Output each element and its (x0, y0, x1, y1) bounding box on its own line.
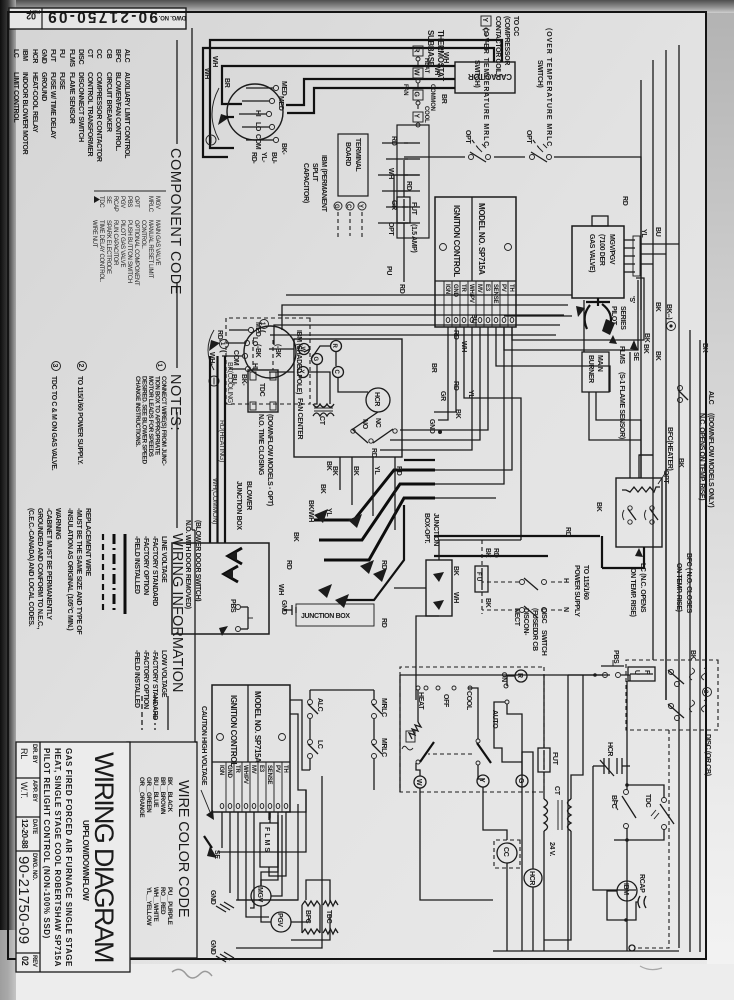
svg-text:BR: BR (223, 78, 230, 88)
svg-text:BK: BK (701, 343, 708, 353)
svg-text:COMPRESSOR CONTACTOR: COMPRESSOR CONTACTOR (95, 72, 102, 162)
svg-text:RD: RD (390, 136, 397, 146)
svg-text:BK--): BK--) (665, 304, 672, 319)
svg-text:IGNITION CONTROL: IGNITION CONTROL (229, 695, 238, 767)
svg-text:FUSE: FUSE (58, 72, 65, 90)
svg-text:E3: E3 (484, 284, 490, 292)
svg-text:(-BK: (-BK (254, 344, 261, 358)
svg-text:02: 02 (20, 956, 30, 966)
svg-text:90-21750-09: 90-21750-09 (15, 856, 32, 944)
svg-text:WH(COMMON): WH(COMMON) (211, 478, 218, 524)
svg-text:WARNING: WARNING (54, 508, 61, 540)
svg-text:REV: REV (31, 955, 37, 967)
svg-text:CONTROL TRANSFORMER: CONTROL TRANSFORMER (86, 72, 93, 157)
svg-text:RD: RD (492, 548, 499, 558)
svg-text:FUSE W/ TIME DELAY: FUSE W/ TIME DELAY (49, 72, 56, 139)
svg-text:BFC ( N.O. CLOSES: BFC ( N.O. CLOSES (685, 553, 692, 613)
svg-text:CONTROL.: CONTROL. (140, 220, 146, 249)
svg-text:GND: GND (226, 765, 232, 779)
svg-text:LC: LC (316, 740, 323, 749)
svg-text:FUT: FUT (410, 202, 417, 216)
svg-text:MODEL NO. SP715A: MODEL NO. SP715A (477, 203, 486, 275)
svg-text:(DOWNFLOW MODELS - OPT): (DOWNFLOW MODELS - OPT) (266, 414, 273, 506)
svg-text:TERMINAL: TERMINAL (354, 138, 361, 172)
svg-text:DATE: DATE (31, 819, 37, 834)
svg-text:YL-: YL- (260, 152, 267, 163)
svg-text:BK: BK (643, 333, 650, 343)
svg-text:-FACTORY OPTION: -FACTORY OPTION (142, 650, 149, 709)
svg-text:ON TEMP. RISE): ON TEMP. RISE) (675, 563, 682, 612)
svg-text:-INSULATION AS ORIGINAL (105°C: -INSULATION AS ORIGINAL (105°C MIN.) (66, 508, 74, 630)
svg-text:90-21750-09: 90-21750-09 (46, 8, 158, 25)
svg-text:E3: E3 (258, 765, 264, 773)
svg-text:TDC TO C & M ON GAS VALVE.: TDC TO C & M ON GAS VALVE. (50, 376, 57, 471)
svg-text:RO__RED: RO__RED (159, 887, 166, 915)
svg-text:JUNCTION BOX: JUNCTION BOX (235, 481, 242, 530)
svg-text:BU__BLUE: BU__BLUE (152, 777, 159, 807)
svg-text:BR__BROWN: BR__BROWN (159, 777, 166, 815)
svg-text:CAUTION HIGH VOLTAGE: CAUTION HIGH VOLTAGE (200, 706, 207, 786)
svg-text:MANUAL RESET LIMIT: MANUAL RESET LIMIT (147, 220, 153, 279)
svg-text:FUT: FUT (49, 49, 56, 63)
svg-text:BK/WH: BK/WH (307, 500, 314, 522)
svg-text:MAIN GAS VALVE: MAIN GAS VALVE (154, 220, 160, 266)
svg-text:IBM: IBM (622, 883, 629, 895)
svg-text:BK-: BK- (240, 374, 247, 386)
svg-text:RL: RL (19, 748, 29, 759)
svg-text:DR. BY: DR. BY (31, 744, 37, 763)
svg-text:N.O. WITH DOOR REMOVED): N.O. WITH DOOR REMOVED) (184, 520, 191, 609)
svg-text:OPTIONAL COMPONENT: OPTIONAL COMPONENT (133, 220, 139, 286)
svg-text:WH: WH (460, 341, 467, 352)
svg-text:TR: TR (460, 284, 466, 292)
svg-text:DISCONNECT SWITCH: DISCONNECT SWITCH (77, 72, 84, 142)
svg-text:(-BK: (-BK (274, 344, 281, 358)
svg-text:RCAP: RCAP (638, 874, 645, 893)
svg-text:FU: FU (58, 49, 65, 58)
svg-text:DISC (OR CB): DISC (OR CB) (704, 734, 711, 776)
svg-text:R: R (516, 673, 523, 678)
svg-text:HCR: HCR (606, 742, 613, 756)
svg-text:BR: BR (440, 94, 447, 104)
svg-text:OFF: OFF (442, 694, 449, 708)
svg-text:GND: GND (428, 419, 435, 434)
svg-text:N.O. TIME CLOSING: N.O. TIME CLOSING (257, 414, 264, 476)
svg-text:WH: WH (442, 52, 449, 63)
svg-text:CC: CC (95, 49, 102, 59)
svg-text:BK__BLACK: BK__BLACK (166, 777, 173, 813)
svg-text:WH: WH (211, 56, 218, 67)
svg-text:RD: RD (564, 527, 571, 537)
svg-text:WIRING DIAGRAM: WIRING DIAGRAM (89, 752, 119, 964)
svg-text:RD: RD (285, 560, 292, 570)
svg-text:LC: LC (12, 49, 19, 58)
svg-text:MAIN: MAIN (596, 355, 603, 372)
svg-text:TO 115/1/60 POWER SUPPLY.: TO 115/1/60 POWER SUPPLY. (76, 376, 83, 465)
svg-text:YL: YL (467, 390, 474, 399)
svg-text:G: G (517, 778, 524, 784)
svg-text:WIRE COLOR CODE: WIRE COLOR CODE (175, 780, 191, 918)
svg-text:MED: MED (277, 96, 284, 111)
svg-text:IGN: IGN (444, 284, 450, 294)
svg-text:OR CB: OR CB (531, 630, 538, 651)
svg-text:W: W (415, 779, 422, 786)
svg-text:BOARD: BOARD (344, 142, 351, 166)
svg-text:RUN CAPACITOR: RUN CAPACITOR (112, 220, 118, 266)
svg-text:WIRE NUT: WIRE NUT (91, 220, 97, 248)
svg-text:MGV/PGV: MGV/PGV (608, 234, 615, 265)
svg-text:(OVER TEMPERATURE MRLC: (OVER TEMPERATURE MRLC (545, 28, 552, 146)
svg-text:GND: GND (280, 600, 287, 615)
svg-text:ALC: ALC (707, 391, 714, 405)
svg-text:((DOWNFLOW MODELS ONLY): ((DOWNFLOW MODELS ONLY) (707, 413, 714, 507)
svg-text:GR: GR (390, 200, 397, 210)
svg-text:TH: TH (508, 284, 514, 292)
svg-text:TDC: TDC (644, 794, 651, 808)
svg-text:LC (N.C. OPENS: LC (N.C. OPENS (639, 563, 646, 613)
svg-text:Y: Y (357, 204, 363, 208)
svg-text:CB: CB (105, 49, 112, 59)
svg-text:BFC: BFC (114, 49, 121, 63)
svg-text:HEAT, SINGLE STAGE COOL ROBERT: HEAT, SINGLE STAGE COOL ROBERTSHAW SP715… (53, 748, 62, 967)
svg-text:PGV: PGV (119, 196, 125, 208)
svg-text:BK: BK (689, 650, 696, 660)
svg-text:COMPONENT CODE: COMPONENT CODE (167, 148, 183, 295)
svg-text:RD: RD (452, 381, 459, 391)
svg-text:MRLC: MRLC (147, 196, 153, 213)
svg-text:PILOT GAS VALVE: PILOT GAS VALVE (119, 220, 125, 267)
svg-text:RD: RD (380, 618, 387, 628)
svg-text:GR__GREEN: GR__GREEN (145, 777, 152, 813)
svg-text:TDC: TDC (325, 910, 332, 924)
svg-text:IBM (PERMANENT: IBM (PERMANENT (320, 155, 327, 213)
svg-text:N.C. OPENS ON TEMP. RISE): N.C. OPENS ON TEMP. RISE) (698, 413, 705, 500)
svg-text:NECT: NECT (513, 608, 520, 627)
svg-text:FLMS: FLMS (618, 346, 625, 364)
svg-text:BK: BK (654, 351, 661, 361)
svg-text:WH: WH (203, 68, 210, 79)
svg-text:DISC: DISC (77, 49, 84, 65)
svg-text:LOW VOLTAGE: LOW VOLTAGE (160, 650, 167, 698)
svg-text:MODEL NO. SP715A: MODEL NO. SP715A (253, 691, 262, 763)
svg-text:RD-: RD- (216, 330, 223, 342)
svg-text:CT: CT (86, 49, 93, 59)
svg-text:JUNCTION BOX: JUNCTION BOX (301, 613, 350, 620)
svg-text:WH/PV: WH/PV (242, 765, 248, 784)
svg-text:HCR: HCR (528, 871, 535, 885)
svg-text:HCR: HCR (31, 49, 38, 63)
svg-text:H: H (562, 578, 569, 583)
svg-text:BOX-OPT.: BOX-OPT. (423, 513, 430, 544)
svg-text:HEAT-COOL RELAY: HEAT-COOL RELAY (31, 72, 38, 133)
svg-text:DWG. NO.: DWG. NO. (158, 14, 186, 20)
svg-text:MGV: MGV (154, 196, 160, 209)
svg-text:RCAP: RCAP (112, 196, 118, 212)
svg-text:BK: BK (292, 532, 299, 542)
svg-text:GROUND: GROUND (40, 72, 47, 101)
svg-text:OR__ORANGE: OR__ORANGE (138, 777, 145, 817)
svg-text:BK: BK (352, 466, 359, 476)
svg-text:G: G (413, 92, 420, 98)
svg-text:(1.5 AMP): (1.5 AMP) (410, 224, 417, 253)
svg-text:GAS FIRED FORCED AIR FURNACE S: GAS FIRED FORCED AIR FURNACE SINGLE STAG… (64, 748, 73, 967)
svg-text:MRLC: MRLC (380, 738, 387, 757)
svg-text:PUSH BUTTON SWITCH: PUSH BUTTON SWITCH (126, 220, 132, 283)
svg-text:(S-1 FLAME SENSOR): (S-1 FLAME SENSOR) (618, 372, 625, 439)
svg-text:CAPACITOR): CAPACITOR) (302, 163, 309, 203)
svg-text:WH__WHITE: WH__WHITE (152, 887, 159, 922)
svg-text:BK: BK (484, 598, 491, 608)
svg-text:SWITCH: SWITCH (540, 630, 547, 656)
svg-text:Y: Y (413, 114, 420, 119)
svg-text:TO 115/1/60: TO 115/1/60 (582, 565, 589, 600)
svg-text:GROUNDED AND CONFORM TO N.E.C.: GROUNDED AND CONFORM TO N.E.C., (36, 508, 43, 629)
svg-text:NC: NC (374, 418, 381, 428)
svg-text:ON: ON (500, 672, 507, 682)
svg-text:RD: RD (405, 181, 412, 191)
svg-text:(C.E.C.-CANADA) AND LOCAL CODE: (C.E.C.-CANADA) AND LOCAL CODES. (27, 508, 34, 627)
svg-text:DISC: DISC (540, 608, 547, 624)
svg-text:-FIELD INSTALLED: -FIELD INSTALLED (133, 650, 140, 708)
svg-text:PILOT RELIGHT CONTROL (NON-100: PILOT RELIGHT CONTROL (NON-100% SSD) (42, 748, 51, 939)
svg-text:BK-: BK- (280, 143, 287, 155)
svg-text:MV: MV (476, 284, 482, 293)
svg-text:RD: RD (370, 448, 377, 458)
svg-text:-MUST BE THE SAME SIZE AND TYP: -MUST BE THE SAME SIZE AND TYPE OF (75, 508, 82, 635)
svg-text:24 V.: 24 V. (548, 842, 555, 856)
svg-text:BK: BK (325, 461, 332, 471)
svg-text:BK: BK (484, 548, 491, 558)
svg-text:2: 2 (77, 364, 84, 368)
svg-text:COM: COM (254, 134, 261, 150)
svg-text:SWITCH): SWITCH) (473, 60, 480, 88)
svg-text:MV: MV (250, 765, 256, 774)
svg-text:WH/PV: WH/PV (468, 284, 474, 303)
svg-text:WH: WH (452, 592, 459, 603)
svg-text:WH: WH (433, 64, 440, 75)
svg-text:APP. BY: APP. BY (31, 780, 37, 802)
svg-text:GND: GND (209, 940, 216, 955)
svg-text:GND: GND (209, 890, 216, 905)
svg-text:Y: Y (298, 370, 304, 374)
svg-text:REPLACEMENT WIRE: REPLACEMENT WIRE (84, 508, 91, 577)
svg-text:(7100 DER: (7100 DER (598, 234, 605, 266)
svg-text:PU__PURPLE: PU__PURPLE (166, 887, 173, 925)
svg-text:-FACTORY OPTION: -FACTORY OPTION (142, 536, 149, 595)
svg-text:-FACTORY STANDARD: -FACTORY STANDARD (151, 650, 158, 720)
svg-text:BFC(HEATER): BFC(HEATER) (666, 427, 673, 470)
svg-text:BR: BR (430, 363, 437, 373)
svg-text:HEAT: HEAT (423, 58, 429, 74)
svg-text:12-20-88: 12-20-88 (20, 819, 29, 849)
svg-text:W.T.: W.T. (19, 782, 29, 798)
svg-text:-FIELD INSTALLED: -FIELD INSTALLED (133, 536, 140, 594)
svg-text:TDC: TDC (98, 196, 104, 208)
svg-text:PBS: PBS (229, 599, 236, 613)
svg-text:(COMPRESSOR: (COMPRESSOR (503, 16, 510, 65)
svg-text:RD: RD (395, 466, 402, 476)
svg-text:GND: GND (40, 49, 47, 64)
svg-text:SE: SE (105, 196, 111, 204)
svg-text:OPT: OPT (464, 130, 471, 144)
svg-text:LINE VOLTAGE: LINE VOLTAGE (160, 536, 167, 583)
svg-text:FUT: FUT (551, 752, 558, 766)
svg-text:OPT: OPT (133, 196, 139, 208)
svg-text:HCR: HCR (373, 392, 380, 406)
svg-text:(BLOWER DOOR SWITCH): (BLOWER DOOR SWITCH) (194, 520, 201, 601)
svg-text:CONTACTOR COIL): CONTACTOR COIL) (494, 16, 501, 76)
svg-text:FAN CENTER: FAN CENTER (296, 398, 303, 440)
svg-text:ON TEMP. RISE): ON TEMP. RISE) (629, 568, 636, 617)
svg-text:SPLIT: SPLIT (311, 163, 318, 182)
svg-text:BK: BK (319, 484, 326, 494)
svg-text:RD: RD (380, 560, 387, 570)
svg-text:PV: PV (274, 765, 280, 773)
svg-text:TH: TH (282, 765, 288, 773)
svg-text:CHANGE INSTRUCTIONS.: CHANGE INSTRUCTIONS. (134, 376, 141, 447)
svg-text:PV: PV (500, 284, 506, 292)
svg-text:PGV: PGV (276, 913, 283, 927)
svg-text:BLOWER: BLOWER (245, 481, 252, 510)
svg-text:BLOWER/FAN CONTROL.: BLOWER/FAN CONTROL. (114, 72, 121, 151)
svg-text:UPFLOW/DOWNFLOW: UPFLOW/DOWNFLOW (81, 820, 90, 901)
svg-text:-CABINET MUST BE PERMANENTLY: -CABINET MUST BE PERMANENTLY (45, 508, 52, 620)
svg-text:CT: CT (553, 786, 560, 796)
svg-text:MED: MED (280, 81, 287, 96)
svg-text:N: N (562, 607, 569, 612)
svg-text:CT: CT (318, 416, 325, 426)
svg-text:BK: BK (654, 302, 661, 312)
svg-text:SENSE: SENSE (492, 284, 498, 304)
svg-text:YL: YL (325, 508, 332, 517)
svg-text:BK: BK (454, 409, 461, 419)
svg-text:ALC: ALC (316, 698, 323, 712)
svg-text:F U: F U (475, 572, 481, 581)
svg-text:GR: GR (439, 391, 446, 401)
svg-text:SPARK ELECTRODE: SPARK ELECTRODE (105, 220, 111, 274)
svg-text:COOL: COOL (465, 691, 472, 711)
svg-text:W: W (413, 69, 420, 76)
svg-text:OPT: OPT (525, 130, 532, 144)
svg-text:FLMS: FLMS (263, 827, 270, 854)
svg-text:SENSE: SENSE (266, 765, 272, 785)
svg-text:GAS VALVE): GAS VALVE) (588, 234, 595, 272)
svg-text:BURNER: BURNER (587, 355, 594, 383)
svg-text:RD-: RD- (250, 152, 257, 164)
svg-text:POWER SUPPLY: POWER SUPPLY (573, 565, 580, 617)
svg-text:RD: RD (621, 196, 628, 206)
svg-text:INDOOR BLOWER MOTOR: INDOOR BLOWER MOTOR (21, 72, 28, 155)
svg-text:BK: BK (642, 344, 649, 354)
svg-text:CC: CC (502, 847, 509, 857)
svg-text:IGN: IGN (218, 765, 224, 775)
svg-text:(FUSED: (FUSED (531, 608, 538, 632)
svg-text:ALC: ALC (123, 49, 130, 63)
svg-text:COOL: COOL (423, 106, 429, 123)
svg-text:YL__YELLOW: YL__YELLOW (145, 887, 152, 926)
svg-text:MRLC: MRLC (380, 698, 387, 717)
svg-text:PBS: PBS (126, 196, 132, 207)
svg-text:3: 3 (51, 364, 58, 368)
svg-text:AUXILIARY LIMIT CONTROL: AUXILIARY LIMIT CONTROL (123, 72, 130, 159)
svg-text:WH: WH (277, 584, 284, 595)
svg-text:OPT: OPT (387, 222, 394, 236)
svg-text:YL: YL (373, 466, 380, 475)
svg-text:IGNITION CONTROL: IGNITION CONTROL (452, 205, 461, 277)
svg-text:(OVER TEMPERATURE MRLC: (OVER TEMPERATURE MRLC (482, 28, 489, 146)
svg-text:SE: SE (632, 352, 639, 361)
svg-text:RD: RD (398, 284, 405, 294)
svg-text:TIME DELAY CONTROL.: TIME DELAY CONTROL. (98, 220, 104, 283)
svg-text:Y: Y (481, 18, 488, 23)
svg-text:BK: BK (452, 566, 459, 576)
svg-text:G: G (333, 204, 339, 209)
svg-text:'S': 'S' (628, 296, 635, 304)
svg-text:PILOT: PILOT (610, 306, 617, 326)
svg-text:JUNCTION: JUNCTION (432, 513, 439, 546)
svg-text:NOTES:: NOTES: (167, 374, 183, 431)
svg-text:BK(COOLING): BK(COOLING) (226, 362, 233, 405)
svg-text:LIMIT CONTROL: LIMIT CONTROL (12, 72, 19, 123)
svg-text:FAN: FAN (402, 84, 408, 95)
svg-text:SERIES: SERIES (619, 306, 626, 330)
svg-text:DISCON-: DISCON- (522, 608, 529, 636)
svg-text:BU-: BU- (270, 152, 277, 164)
svg-text:R: R (413, 48, 420, 53)
svg-text:HI: HI (251, 363, 258, 370)
svg-text:RD(HEATING): RD(HEATING) (218, 420, 225, 462)
svg-text:FLMS: FLMS (68, 49, 75, 67)
svg-text:CIRCUIT BREAKER: CIRCUIT BREAKER (105, 72, 112, 132)
svg-text:BK: BK (677, 458, 684, 468)
svg-text:SWITCH): SWITCH) (536, 60, 543, 88)
svg-text:BU: BU (654, 227, 661, 237)
svg-text:WH: WH (387, 168, 394, 179)
svg-text:IBM: IBM (21, 49, 28, 61)
svg-text:PU: PU (385, 266, 392, 275)
svg-text:TDC: TDC (258, 383, 265, 397)
svg-text:BK: BK (595, 502, 602, 512)
svg-text:TR: TR (234, 765, 240, 773)
svg-text:FLAME SENSOR: FLAME SENSOR (68, 72, 75, 124)
svg-text:-FACTORY STANDARD: -FACTORY STANDARD (151, 536, 158, 606)
svg-text:TO CC: TO CC (512, 16, 519, 36)
